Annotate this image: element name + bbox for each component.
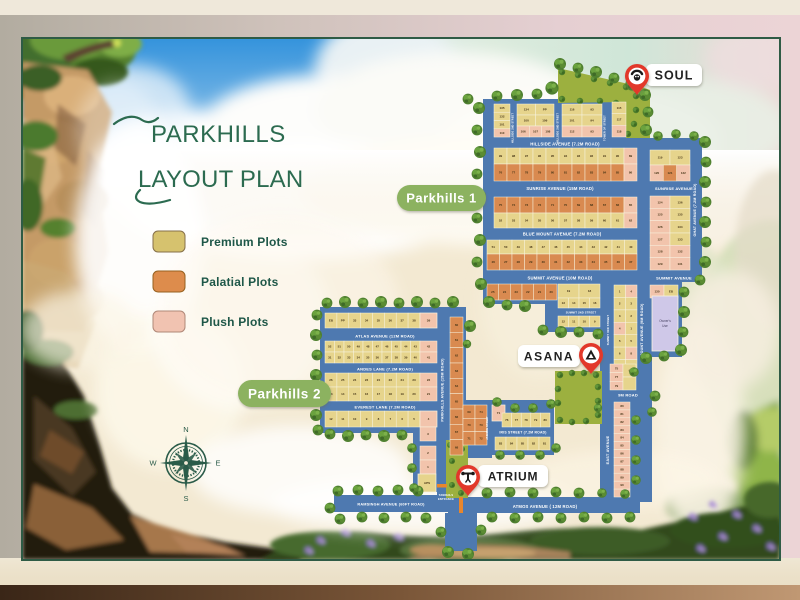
svg-text:135: 135	[677, 213, 682, 217]
svg-text:SUMMIT 2ND STREET: SUMMIT 2ND STREET	[566, 311, 597, 315]
svg-text:23: 23	[514, 290, 518, 294]
svg-text:30: 30	[542, 260, 546, 264]
svg-text:75: 75	[499, 203, 503, 207]
svg-text:9M ROAD: 9M ROAD	[618, 393, 638, 398]
svg-text:79: 79	[534, 418, 538, 422]
svg-text:11: 11	[341, 417, 345, 421]
svg-text:60: 60	[455, 323, 459, 327]
svg-text:94: 94	[564, 154, 568, 158]
svg-text:SUNRISE AVENUE (15M ROAD): SUNRISE AVENUE (15M ROAD)	[526, 186, 594, 191]
svg-text:65: 65	[455, 399, 459, 403]
svg-text:130: 130	[654, 290, 659, 294]
svg-text:98: 98	[512, 154, 516, 158]
svg-text:85: 85	[521, 442, 525, 446]
svg-text:107: 107	[533, 130, 538, 134]
svg-text:75: 75	[615, 366, 619, 370]
svg-text:95: 95	[551, 154, 555, 158]
svg-text:34: 34	[592, 260, 596, 264]
svg-text:83: 83	[620, 428, 624, 432]
svg-text:101: 101	[499, 123, 504, 127]
svg-text:16: 16	[365, 392, 369, 396]
svg-text:101: 101	[569, 119, 574, 123]
svg-text:77: 77	[512, 171, 516, 175]
svg-text:38: 38	[395, 356, 399, 360]
svg-text:TOWER OF STREET: TOWER OF STREET	[604, 115, 607, 141]
svg-text:76: 76	[499, 171, 503, 175]
svg-text:70: 70	[467, 423, 471, 427]
svg-text:TANDHILS: TANDHILS	[439, 493, 454, 497]
svg-text:62: 62	[629, 219, 633, 223]
svg-text:68: 68	[455, 445, 459, 449]
svg-text:15: 15	[353, 392, 357, 396]
svg-text:31: 31	[554, 260, 558, 264]
svg-text:23: 23	[389, 378, 393, 382]
svg-text:33: 33	[353, 319, 357, 323]
svg-text:HILLSIDE 2ND STREET: HILLSIDE 2ND STREET	[557, 113, 560, 144]
svg-text:12: 12	[329, 417, 333, 421]
svg-text:19: 19	[401, 392, 405, 396]
svg-text:41: 41	[617, 245, 621, 249]
svg-text:ASANA: ASANA	[524, 349, 574, 363]
svg-text:PP: PP	[543, 108, 547, 112]
svg-text:56: 56	[551, 219, 555, 223]
svg-text:74: 74	[479, 410, 483, 414]
svg-text:42: 42	[604, 245, 608, 249]
svg-text:PARKHILLS AVENUE (15M ROAD): PARKHILLS AVENUE (15M ROAD)	[441, 358, 445, 422]
svg-text:23: 23	[365, 378, 369, 382]
svg-text:83: 83	[499, 442, 503, 446]
svg-text:88: 88	[620, 467, 624, 471]
svg-text:48: 48	[529, 245, 533, 249]
svg-text:MOUNT AVENUE (9M ROAD): MOUNT AVENUE (9M ROAD)	[640, 303, 644, 357]
svg-text:134: 134	[677, 225, 682, 229]
svg-text:16: 16	[593, 301, 597, 305]
svg-text:86: 86	[629, 171, 633, 175]
svg-text:29: 29	[529, 260, 533, 264]
svg-text:10: 10	[583, 320, 587, 324]
svg-text:SUMMIT 3RD STREET: SUMMIT 3RD STREET	[606, 315, 610, 346]
svg-text:50: 50	[504, 245, 508, 249]
svg-text:57: 57	[564, 219, 568, 223]
svg-text:68: 68	[590, 203, 594, 207]
svg-text:14: 14	[572, 301, 576, 305]
svg-text:66: 66	[455, 415, 459, 419]
svg-text:11: 11	[572, 320, 576, 324]
svg-text:RAMSINGH AVENUE (60FT ROAD): RAMSINGH AVENUE (60FT ROAD)	[357, 503, 425, 507]
svg-text:77: 77	[515, 418, 519, 422]
svg-text:ANDES LANE (7.2M ROAD): ANDES LANE (7.2M ROAD)	[357, 367, 413, 372]
svg-text:91: 91	[603, 154, 607, 158]
svg-text:53: 53	[512, 219, 516, 223]
svg-text:33: 33	[579, 260, 583, 264]
svg-text:131: 131	[677, 262, 682, 266]
svg-text:73: 73	[525, 203, 529, 207]
svg-text:84: 84	[510, 442, 514, 446]
svg-text:SUMMIT AVENUE (10M ROAD): SUMMIT AVENUE (10M ROAD)	[527, 276, 592, 281]
svg-text:124: 124	[657, 200, 662, 204]
svg-text:136: 136	[677, 200, 682, 204]
svg-text:97: 97	[525, 154, 529, 158]
svg-text:34: 34	[357, 356, 361, 360]
svg-text:21: 21	[538, 290, 542, 294]
svg-text:55: 55	[538, 219, 542, 223]
svg-text:84: 84	[603, 171, 607, 175]
svg-text:48: 48	[366, 345, 370, 349]
svg-text:78: 78	[524, 418, 528, 422]
svg-text:E: E	[215, 459, 220, 468]
svg-text:45: 45	[567, 245, 571, 249]
svg-text:71: 71	[551, 203, 555, 207]
svg-text:PARKHILLS: PARKHILLS	[151, 121, 286, 148]
svg-text:134: 134	[524, 108, 529, 112]
svg-text:26: 26	[492, 260, 496, 264]
svg-text:46: 46	[554, 245, 558, 249]
svg-text:ENTRANCE: ENTRANCE	[438, 497, 454, 501]
svg-text:42: 42	[427, 345, 431, 349]
svg-text:132: 132	[499, 114, 504, 118]
svg-text:121: 121	[667, 171, 672, 175]
svg-text:81: 81	[620, 412, 624, 416]
svg-text:44: 44	[579, 245, 583, 249]
svg-text:59: 59	[590, 219, 594, 223]
svg-text:32: 32	[338, 356, 342, 360]
svg-text:33: 33	[347, 356, 351, 360]
svg-text:37: 37	[401, 319, 405, 323]
svg-text:28: 28	[517, 260, 521, 264]
svg-text:Palatial Plots: Palatial Plots	[201, 275, 279, 289]
svg-text:HILLSIDE 2ND STREET: HILLSIDE 2ND STREET	[512, 113, 515, 144]
svg-text:71: 71	[497, 411, 501, 415]
svg-text:Owner's: Owner's	[659, 319, 671, 323]
svg-text:51: 51	[492, 245, 496, 249]
svg-text:EVEREST LANE (7.2M ROAD): EVEREST LANE (7.2M ROAD)	[354, 405, 415, 410]
svg-text:69: 69	[577, 203, 581, 207]
svg-text:119: 119	[658, 156, 663, 160]
svg-text:35: 35	[377, 319, 381, 323]
svg-text:22: 22	[526, 290, 530, 294]
svg-text:80: 80	[620, 404, 624, 408]
svg-text:LAYOUT PLAN: LAYOUT PLAN	[138, 166, 303, 193]
svg-text:117: 117	[617, 118, 622, 122]
svg-text:125: 125	[657, 213, 662, 217]
svg-text:SOUL: SOUL	[655, 69, 694, 83]
svg-text:10: 10	[353, 417, 357, 421]
svg-text:APS: APS	[424, 481, 430, 485]
svg-text:13: 13	[562, 301, 566, 305]
svg-text:89: 89	[629, 154, 633, 158]
svg-text:76: 76	[505, 418, 509, 422]
svg-text:W: W	[149, 459, 157, 468]
svg-text:HILLSIDE AVENUE (7.2M ROAD): HILLSIDE AVENUE (7.2M ROAD)	[530, 142, 600, 147]
svg-text:54: 54	[525, 219, 529, 223]
svg-text:24: 24	[401, 378, 405, 382]
svg-text:EAST AVENUE: EAST AVENUE	[606, 435, 610, 464]
svg-text:96: 96	[538, 154, 542, 158]
svg-text:80: 80	[551, 171, 555, 175]
svg-text:85: 85	[620, 444, 624, 448]
svg-text:79: 79	[538, 171, 542, 175]
svg-text:26: 26	[329, 378, 333, 382]
svg-text:62: 62	[455, 353, 459, 357]
svg-text:23: 23	[412, 378, 416, 382]
svg-text:20: 20	[412, 392, 416, 396]
svg-text:25: 25	[341, 378, 345, 382]
svg-text:82: 82	[577, 171, 581, 175]
svg-text:129: 129	[657, 262, 662, 266]
svg-text:84: 84	[620, 436, 624, 440]
svg-text:PP: PP	[341, 319, 345, 323]
svg-text:100: 100	[524, 119, 529, 123]
svg-text:135: 135	[499, 106, 504, 110]
svg-text:115: 115	[617, 106, 622, 110]
svg-text:20: 20	[549, 290, 553, 294]
svg-text:SUMMIT AVENUE: SUMMIT AVENUE	[656, 276, 692, 281]
svg-text:83: 83	[590, 171, 594, 175]
svg-text:27: 27	[504, 260, 508, 264]
svg-text:58: 58	[577, 219, 581, 223]
svg-text:120: 120	[654, 171, 659, 175]
svg-text:80: 80	[544, 418, 548, 422]
svg-text:51: 51	[338, 345, 342, 349]
svg-text:24: 24	[503, 290, 507, 294]
svg-text:49: 49	[517, 245, 521, 249]
svg-text:78: 78	[525, 171, 529, 175]
svg-text:21: 21	[427, 392, 431, 396]
svg-text:32: 32	[567, 260, 571, 264]
svg-text:38: 38	[412, 319, 416, 323]
svg-text:67: 67	[455, 430, 459, 434]
svg-text:36: 36	[617, 260, 621, 264]
svg-text:85: 85	[616, 171, 620, 175]
svg-text:IRIS STREET (7.2M ROAD): IRIS STREET (7.2M ROAD)	[499, 431, 546, 435]
svg-text:50: 50	[347, 345, 351, 349]
svg-text:31: 31	[328, 356, 332, 360]
svg-text:GHAT AVENUE (7.2M ROAD): GHAT AVENUE (7.2M ROAD)	[693, 183, 697, 237]
svg-text:90: 90	[620, 483, 624, 487]
svg-text:19: 19	[567, 289, 571, 293]
svg-text:35: 35	[604, 260, 608, 264]
svg-text:37: 37	[629, 260, 633, 264]
svg-text:Parkhills 1: Parkhills 1	[406, 191, 477, 206]
svg-text:116: 116	[570, 108, 575, 112]
svg-text:BLUE MOUNT AVENUE (7.2M ROAD): BLUE MOUNT AVENUE (7.2M ROAD)	[523, 232, 602, 237]
svg-text:25: 25	[491, 290, 495, 294]
svg-text:12: 12	[562, 320, 566, 324]
svg-text:89: 89	[620, 475, 624, 479]
svg-text:122: 122	[681, 171, 686, 175]
svg-text:70: 70	[564, 203, 568, 207]
svg-text:63: 63	[455, 369, 459, 373]
svg-text:92: 92	[590, 154, 594, 158]
svg-text:60: 60	[603, 219, 607, 223]
svg-text:64: 64	[455, 384, 459, 388]
svg-text:47: 47	[542, 245, 546, 249]
svg-text:73: 73	[479, 423, 483, 427]
svg-text:22: 22	[427, 378, 431, 382]
svg-text:18: 18	[389, 392, 393, 396]
svg-text:123: 123	[677, 156, 682, 160]
svg-text:61: 61	[616, 219, 620, 223]
svg-text:52: 52	[499, 219, 503, 223]
svg-text:72: 72	[479, 436, 483, 440]
svg-text:79: 79	[615, 384, 619, 388]
svg-text:77: 77	[615, 375, 619, 379]
svg-text:94: 94	[590, 119, 594, 123]
svg-text:ATMOS AVENUE ( 12M ROAD): ATMOS AVENUE ( 12M ROAD)	[513, 504, 578, 509]
svg-text:15: 15	[583, 301, 587, 305]
svg-text:81: 81	[543, 442, 547, 446]
svg-text:71: 71	[467, 436, 471, 440]
svg-text:93: 93	[590, 108, 594, 112]
svg-text:133: 133	[677, 237, 682, 241]
svg-text:Use: Use	[662, 324, 668, 328]
svg-text:24: 24	[353, 378, 357, 382]
svg-text:41: 41	[427, 356, 431, 360]
svg-text:4: 4	[428, 417, 430, 421]
svg-text:52: 52	[328, 345, 332, 349]
svg-text:65: 65	[629, 203, 633, 207]
svg-text:69: 69	[467, 410, 471, 414]
svg-text:S: S	[183, 494, 188, 503]
svg-text:43: 43	[414, 345, 418, 349]
svg-text:40: 40	[629, 245, 633, 249]
svg-text:118: 118	[617, 129, 622, 133]
svg-text:126: 126	[657, 225, 662, 229]
svg-text:SUNRISE AVENUE: SUNRISE AVENUE	[655, 186, 693, 191]
svg-text:74: 74	[512, 203, 516, 207]
svg-text:82: 82	[532, 442, 536, 446]
svg-text:43: 43	[592, 245, 596, 249]
svg-text:ATRIUM: ATRIUM	[488, 469, 539, 483]
svg-text:ATLAS AVENUE (12M ROAD): ATLAS AVENUE (12M ROAD)	[355, 334, 415, 339]
svg-text:67: 67	[603, 203, 607, 207]
svg-text:90: 90	[616, 154, 620, 158]
svg-text:112: 112	[570, 130, 575, 134]
svg-text:N: N	[183, 425, 188, 434]
svg-text:109: 109	[542, 119, 547, 123]
svg-text:132: 132	[677, 250, 682, 254]
svg-text:18: 18	[588, 289, 592, 293]
svg-text:108: 108	[545, 130, 550, 134]
svg-text:36: 36	[376, 356, 380, 360]
svg-text:45: 45	[395, 345, 399, 349]
svg-text:82: 82	[620, 420, 624, 424]
svg-text:87: 87	[620, 459, 624, 463]
svg-text:47: 47	[376, 345, 380, 349]
svg-text:93: 93	[577, 154, 581, 158]
svg-text:14: 14	[341, 392, 345, 396]
svg-text:127: 127	[657, 237, 662, 241]
svg-text:86: 86	[620, 452, 624, 456]
svg-text:40: 40	[414, 356, 418, 360]
svg-text:61: 61	[455, 338, 459, 342]
svg-text:106: 106	[521, 130, 526, 134]
svg-text:24: 24	[377, 378, 381, 382]
svg-text:99: 99	[499, 154, 503, 158]
svg-text:81: 81	[564, 171, 568, 175]
svg-text:39: 39	[404, 356, 408, 360]
svg-text:34: 34	[365, 319, 369, 323]
svg-text:110: 110	[500, 131, 505, 135]
svg-text:35: 35	[366, 356, 370, 360]
svg-text:128: 128	[657, 250, 662, 254]
svg-text:93: 93	[590, 130, 594, 134]
svg-text:Premium Plots: Premium Plots	[201, 235, 288, 249]
svg-text:49: 49	[357, 345, 361, 349]
svg-text:44: 44	[404, 345, 408, 349]
svg-text:46: 46	[385, 345, 389, 349]
svg-text:Parkhills 2: Parkhills 2	[248, 386, 321, 401]
svg-text:36: 36	[389, 319, 393, 323]
svg-text:39: 39	[427, 319, 431, 323]
svg-text:17: 17	[377, 392, 381, 396]
svg-text:37: 37	[385, 356, 389, 360]
svg-text:JASMINE STREET: JASMINE STREET	[486, 416, 489, 440]
svg-text:Plush Plots: Plush Plots	[201, 315, 269, 329]
svg-text:66: 66	[616, 203, 620, 207]
svg-text:72: 72	[538, 203, 542, 207]
